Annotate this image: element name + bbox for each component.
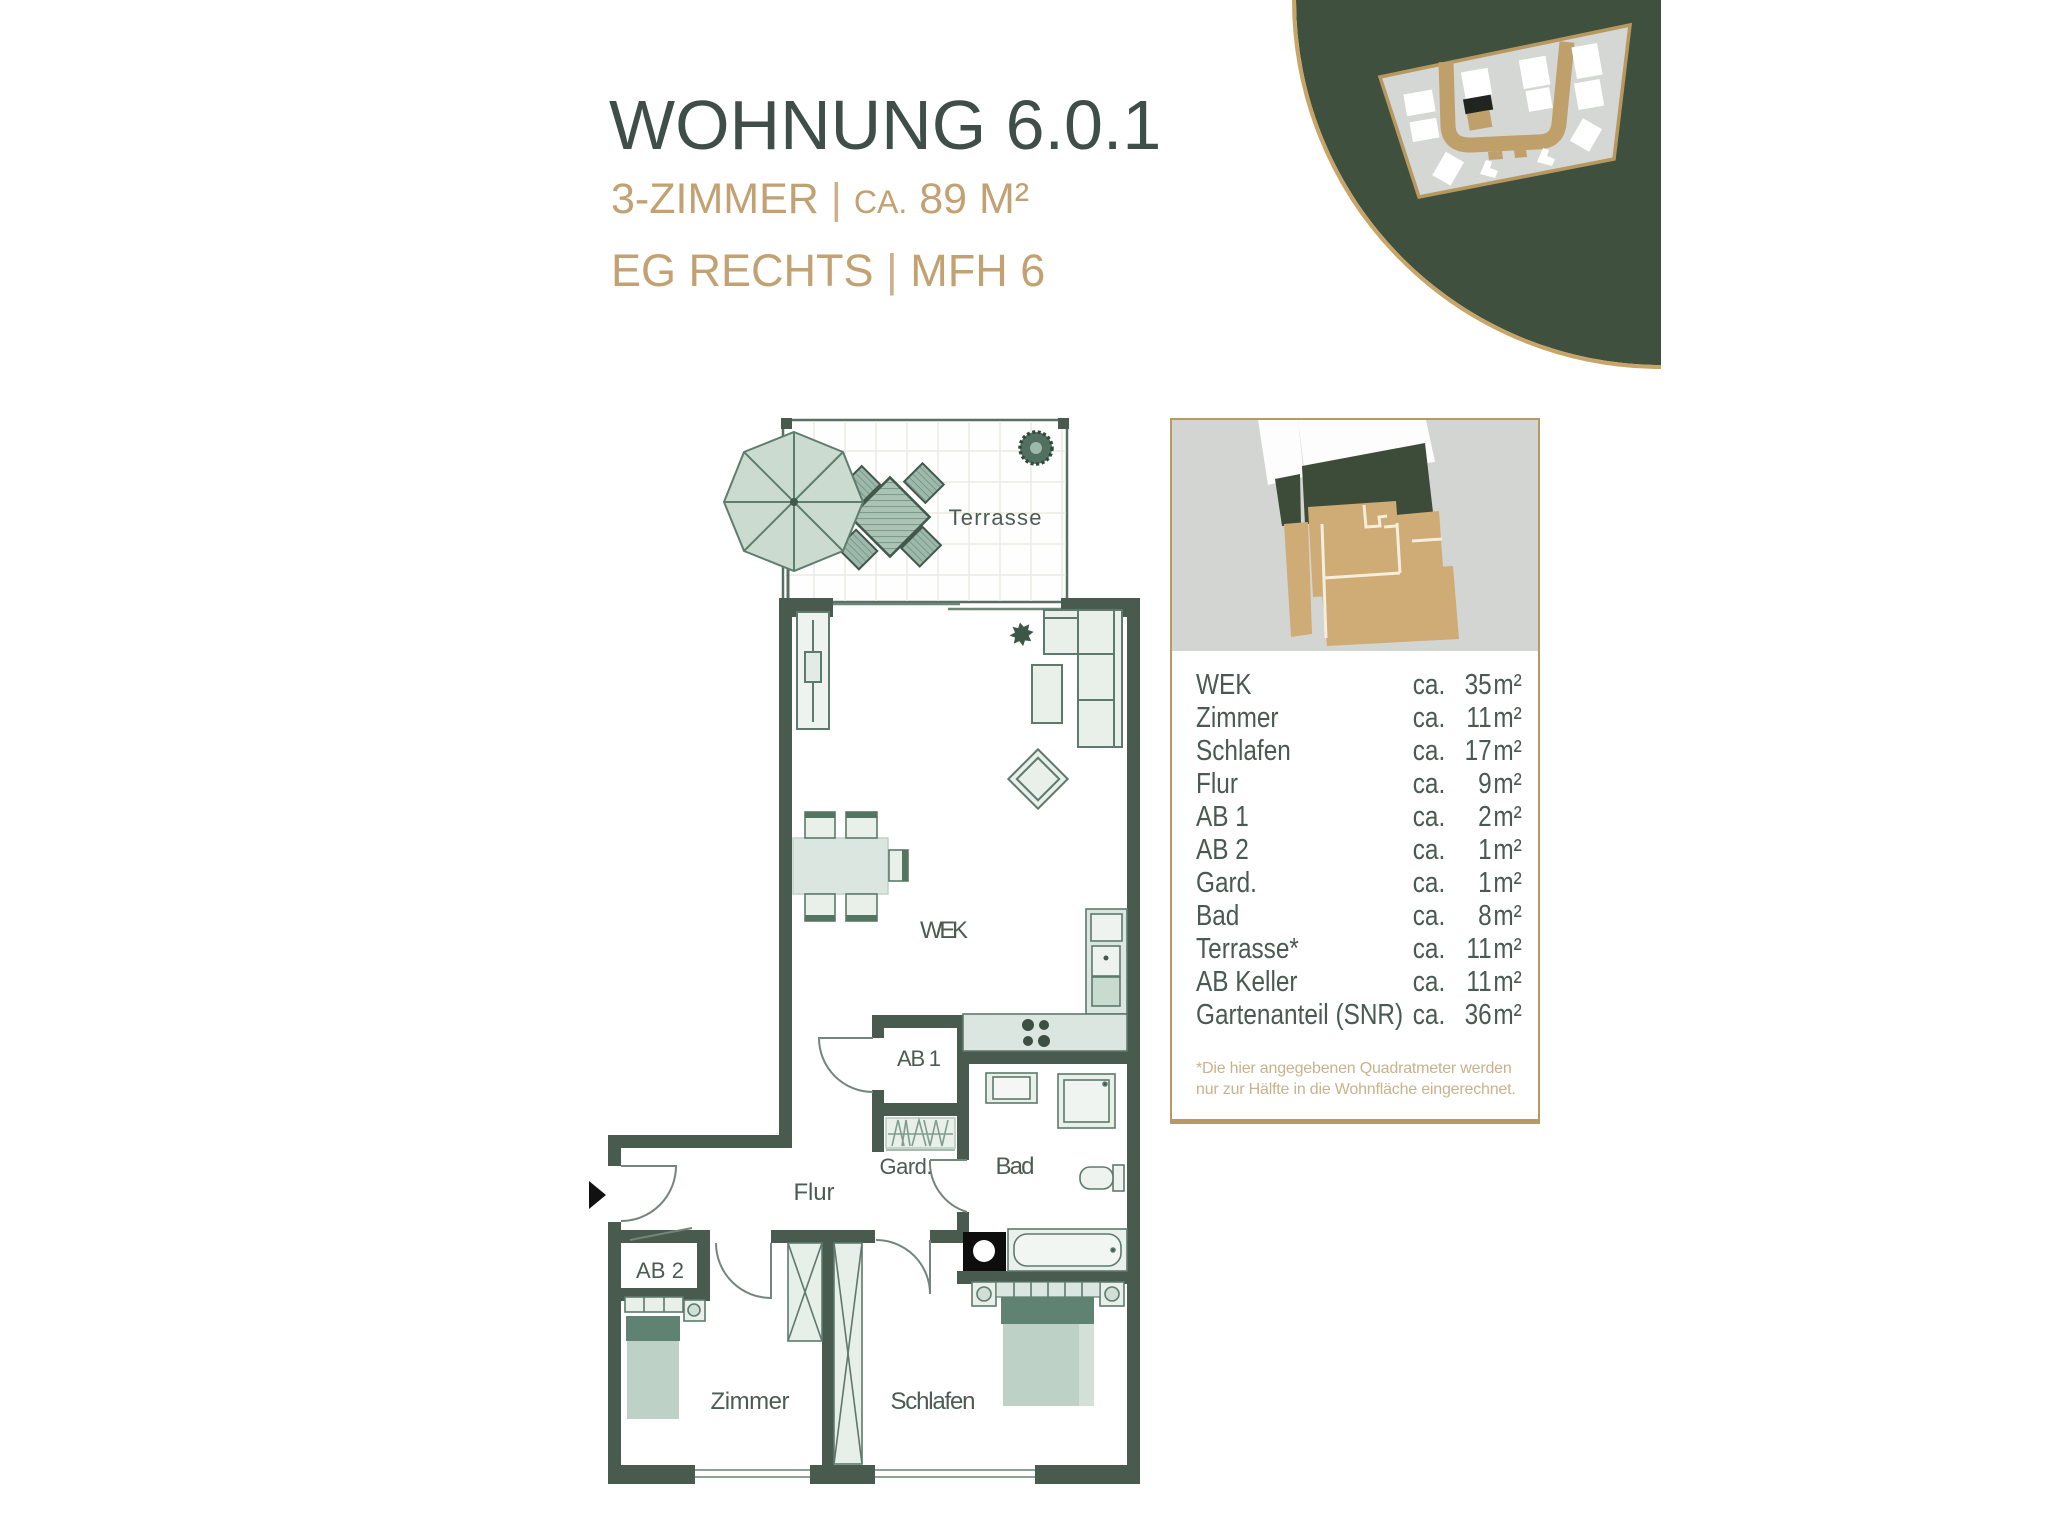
svg-text:Gard.: Gard. <box>880 1154 933 1179</box>
svg-text:Schlafen: Schlafen <box>891 1388 976 1415</box>
svg-text:Bad: Bad <box>996 1153 1035 1180</box>
svg-text:WEK: WEK <box>920 917 970 944</box>
svg-text:Terrasse: Terrasse <box>949 505 1042 530</box>
svg-text:AB 1: AB 1 <box>897 1046 941 1071</box>
svg-text:Flur: Flur <box>794 1179 835 1206</box>
svg-text:AB 2: AB 2 <box>636 1258 684 1283</box>
svg-text:Zimmer: Zimmer <box>711 1388 790 1415</box>
